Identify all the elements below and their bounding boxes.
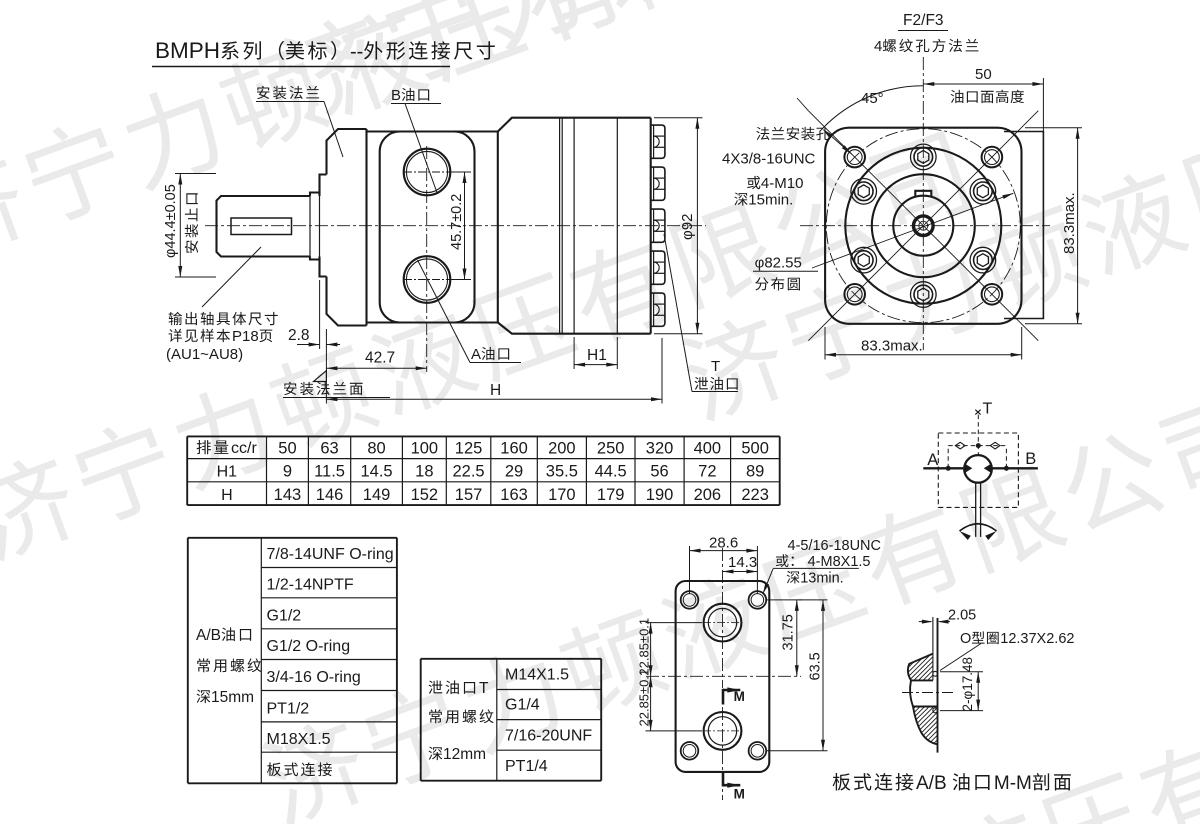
svg-text:42.7: 42.7 <box>365 350 395 367</box>
svg-text:170: 170 <box>548 486 576 504</box>
svg-text:M: M <box>734 787 745 802</box>
svg-text:G1/2: G1/2 <box>267 608 302 625</box>
svg-text:T: T <box>983 401 993 418</box>
svg-text:2-φ17.48: 2-φ17.48 <box>960 657 975 712</box>
svg-text:4-M10: 4-M10 <box>761 175 804 192</box>
svg-text:80: 80 <box>367 440 385 458</box>
svg-text:H: H <box>490 382 501 399</box>
svg-text:H: H <box>221 487 233 504</box>
svg-text:14.3: 14.3 <box>728 554 757 571</box>
svg-text:O: O <box>960 631 971 647</box>
svg-text:15min.: 15min. <box>748 192 793 209</box>
svg-text:13min.: 13min. <box>800 571 844 587</box>
svg-text:100: 100 <box>411 440 439 458</box>
svg-text:3/4-16 O-ring: 3/4-16 O-ring <box>267 669 361 686</box>
svg-text:φ92: φ92 <box>679 214 696 240</box>
svg-text:223: 223 <box>741 486 769 504</box>
svg-text:83.3max.: 83.3max. <box>1061 192 1078 254</box>
svg-text:P18: P18 <box>232 328 259 345</box>
svg-text:T: T <box>711 358 720 375</box>
svg-text:φ82.55: φ82.55 <box>755 255 802 272</box>
svg-text:A: A <box>471 346 481 363</box>
svg-text:250: 250 <box>597 440 625 458</box>
svg-text:14.5: 14.5 <box>360 463 392 481</box>
svg-text:56: 56 <box>650 463 668 481</box>
svg-text:18: 18 <box>415 463 433 481</box>
svg-text:B: B <box>1025 450 1036 468</box>
svg-text:146: 146 <box>316 486 344 504</box>
svg-text:160: 160 <box>500 440 528 458</box>
svg-text:4X3/8-16UNC: 4X3/8-16UNC <box>722 151 816 168</box>
svg-text:63: 63 <box>320 440 338 458</box>
svg-text:BMPH: BMPH <box>155 38 220 63</box>
svg-text:500: 500 <box>741 440 769 458</box>
svg-text:15mm: 15mm <box>211 689 254 706</box>
svg-text:22.85±0.1: 22.85±0.1 <box>637 618 652 676</box>
svg-text:22.5: 22.5 <box>452 463 484 481</box>
svg-text:φ44.4±0.05: φ44.4±0.05 <box>163 184 179 258</box>
svg-text:12mm: 12mm <box>443 746 486 763</box>
svg-text:35.5: 35.5 <box>546 463 578 481</box>
svg-text:A: A <box>927 451 938 469</box>
svg-text:cc/r: cc/r <box>231 440 257 457</box>
svg-text:50: 50 <box>278 440 296 458</box>
svg-text:： 4-M8X1.5: ： 4-M8X1.5 <box>789 554 870 570</box>
svg-text:7/8-14UNF O-ring: 7/8-14UNF O-ring <box>267 546 394 563</box>
svg-text:29: 29 <box>505 463 523 481</box>
svg-text:A/B: A/B <box>916 773 947 794</box>
svg-text:2.05: 2.05 <box>948 608 976 624</box>
svg-text:63.5: 63.5 <box>808 652 824 680</box>
svg-text:45.7±0.2: 45.7±0.2 <box>449 194 465 250</box>
svg-text:89: 89 <box>746 463 764 481</box>
svg-text:206: 206 <box>694 486 722 504</box>
svg-text:PT1/4: PT1/4 <box>505 758 548 775</box>
svg-text:11.5: 11.5 <box>314 463 345 481</box>
svg-text:149: 149 <box>363 486 391 504</box>
svg-text:F2/F3: F2/F3 <box>903 12 943 29</box>
svg-text:157: 157 <box>455 486 483 504</box>
svg-text:31.75: 31.75 <box>781 614 797 650</box>
svg-text:2.8: 2.8 <box>288 327 310 344</box>
svg-text:T: T <box>479 680 489 697</box>
svg-text:83.3max.: 83.3max. <box>861 338 923 355</box>
svg-text:125: 125 <box>455 440 483 458</box>
svg-text:M14X1.5: M14X1.5 <box>505 667 569 684</box>
svg-text:B: B <box>391 87 401 104</box>
svg-text:H1: H1 <box>587 347 607 364</box>
svg-text:12.37X2.62: 12.37X2.62 <box>1000 631 1074 647</box>
svg-text:72: 72 <box>698 463 716 481</box>
svg-text:4-5/16-18UNC: 4-5/16-18UNC <box>788 538 882 554</box>
svg-text:H1: H1 <box>217 464 238 481</box>
svg-text:320: 320 <box>646 440 674 458</box>
svg-text:1/2-14NPTF: 1/2-14NPTF <box>267 577 354 594</box>
svg-text:152: 152 <box>411 486 439 504</box>
svg-text:--: -- <box>350 41 363 63</box>
svg-text:(AU1~AU8): (AU1~AU8) <box>166 346 243 363</box>
svg-text:200: 200 <box>548 440 576 458</box>
svg-text:143: 143 <box>274 486 302 504</box>
svg-text:9: 9 <box>283 463 292 481</box>
svg-text:7/16-20UNF: 7/16-20UNF <box>505 728 592 745</box>
svg-text:190: 190 <box>646 486 674 504</box>
svg-text:400: 400 <box>694 440 722 458</box>
svg-text:28.6: 28.6 <box>709 535 738 552</box>
svg-text:M18X1.5: M18X1.5 <box>267 731 331 748</box>
svg-text:G1/2 O-ring: G1/2 O-ring <box>267 638 351 655</box>
svg-text:50: 50 <box>975 66 992 83</box>
svg-text:A/B: A/B <box>196 627 221 644</box>
svg-text:M-M: M-M <box>994 773 1032 794</box>
svg-text:45°: 45° <box>861 90 884 107</box>
svg-text:G1/4: G1/4 <box>505 697 540 714</box>
svg-text:179: 179 <box>597 486 625 504</box>
svg-text:4: 4 <box>874 38 882 55</box>
svg-text:M: M <box>734 689 745 704</box>
svg-text:22.85±0.1: 22.85±0.1 <box>637 669 652 727</box>
svg-text:163: 163 <box>500 486 528 504</box>
svg-text:44.5: 44.5 <box>595 463 627 481</box>
svg-text:PT1/2: PT1/2 <box>267 701 310 718</box>
